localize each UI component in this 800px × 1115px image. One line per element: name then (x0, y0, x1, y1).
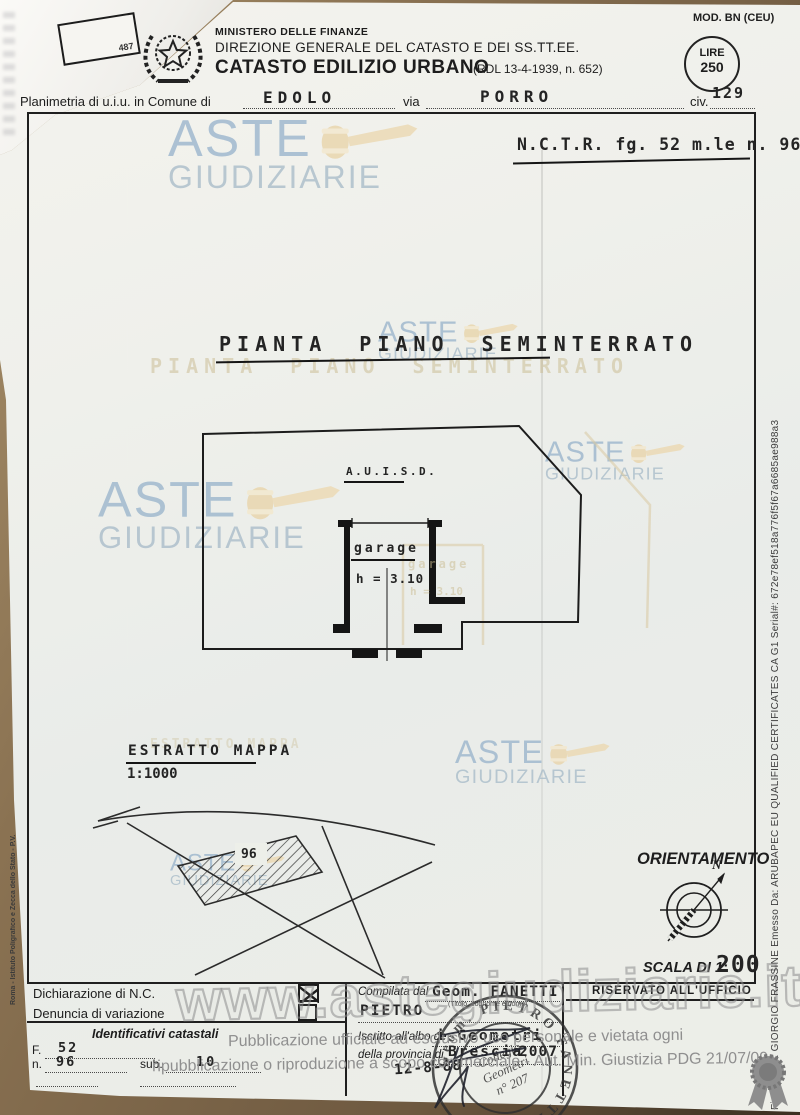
plan-title: PIANTA PIANO SEMINTERRATO (219, 332, 698, 356)
map-parcel-number: 96 (241, 847, 257, 862)
plan-title-ghost: PIANTA PIANO SEMINTERRATO (150, 354, 629, 378)
via-label: via (403, 94, 420, 109)
aste-watermark: ASTE GIUDIZIARIE (168, 114, 421, 192)
direction-line: DIREZIONE GENERALE DEL CATASTO E DEI SS.… (215, 40, 579, 55)
corner-stamp-value: 487 (118, 41, 134, 53)
via-dotted-line (426, 106, 684, 109)
form-title-reference: (RDL 13-4-1939, n. 652) (473, 62, 603, 76)
aste-watermark: ASTE GIUDIZIARIE (455, 737, 612, 786)
corner-stamp-box: 487 (57, 12, 141, 66)
plan-area-label: A.U.I.S.D. (346, 465, 437, 478)
form-title: CATASTO EDILIZIO URBANO (215, 57, 489, 79)
civ-dotted-line (710, 106, 755, 109)
garage-height-ghost: h = 3.10 (410, 585, 463, 598)
parcel-label: n. (32, 1057, 42, 1071)
parcel-value: 96 (56, 1054, 76, 1070)
extra-dotted-1 (36, 1084, 98, 1087)
garage-height: h = 3.10 (356, 571, 424, 586)
parcel-dotted (45, 1070, 127, 1073)
giudiziarie-text: GIUDIZIARIE (168, 163, 421, 192)
map-title-underline (126, 762, 256, 764)
certificate-ribbon-icon (742, 1052, 794, 1114)
nctr-reference: N.C.T.R. fg. 52 m.le n. 96 (517, 135, 800, 154)
garage-label-ghost: garage (408, 557, 469, 571)
printer-imprint-strip: Roma - Istituto Poligrafico e Zecca dell… (10, 755, 17, 1005)
comune-value: EDOLO (263, 88, 336, 107)
declaration-label: Dichiarazione di N.C. (33, 986, 155, 1001)
compass-north-label: N (712, 857, 721, 873)
garage-underline (351, 559, 415, 561)
ministry-line: MINISTERO DELLE FINANZE (215, 26, 368, 38)
map-extract-drawing (85, 785, 455, 985)
map-scale: 1:1000 (127, 766, 178, 782)
plan-area-underline (344, 481, 404, 483)
lire-amount: 250 (686, 59, 738, 75)
faint-backside-print (3, 12, 15, 142)
mod-label: MOD. BN (CEU) (693, 12, 774, 24)
floor-plan-drawing (190, 418, 670, 673)
via-value: PORRO (480, 87, 553, 106)
lire-word: LIRE (686, 47, 738, 59)
garage-label: garage (354, 541, 419, 556)
location-label: Planimetria di u.i.u. in Comune di (20, 94, 211, 109)
scanned-cadastral-document: 487 MINISTERO DELLE FINANZE DIREZIONE GE… (0, 0, 800, 1115)
civ-value: 129 (712, 84, 745, 102)
digital-signature-strip: Firmato Da: GIORGIO FRASSINE Emesso Da: … (770, 378, 781, 1110)
map-title: ESTRATTO MAPPA (128, 743, 292, 759)
italy-emblem-icon (138, 22, 208, 88)
sheet-label: F. (32, 1043, 41, 1057)
aste-text: ASTE (168, 116, 312, 164)
extra-dotted-2 (140, 1084, 236, 1087)
civ-label: civ. (690, 94, 709, 109)
variation-label: Denuncia di variazione (33, 1006, 165, 1021)
